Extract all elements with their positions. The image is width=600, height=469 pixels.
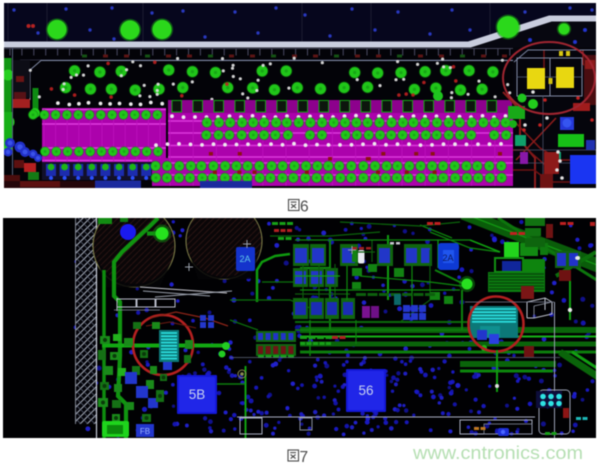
svg-text:6: 6 (300, 199, 309, 216)
svg-text:5B: 5B (189, 387, 206, 402)
svg-text:www.cntronics.com: www.cntronics.com (412, 443, 583, 463)
svg-text:2A: 2A (442, 253, 453, 263)
svg-text:FB: FB (140, 427, 150, 436)
svg-text:2A: 2A (239, 254, 250, 264)
svg-text:56: 56 (358, 383, 373, 398)
svg-text:7: 7 (300, 449, 309, 466)
